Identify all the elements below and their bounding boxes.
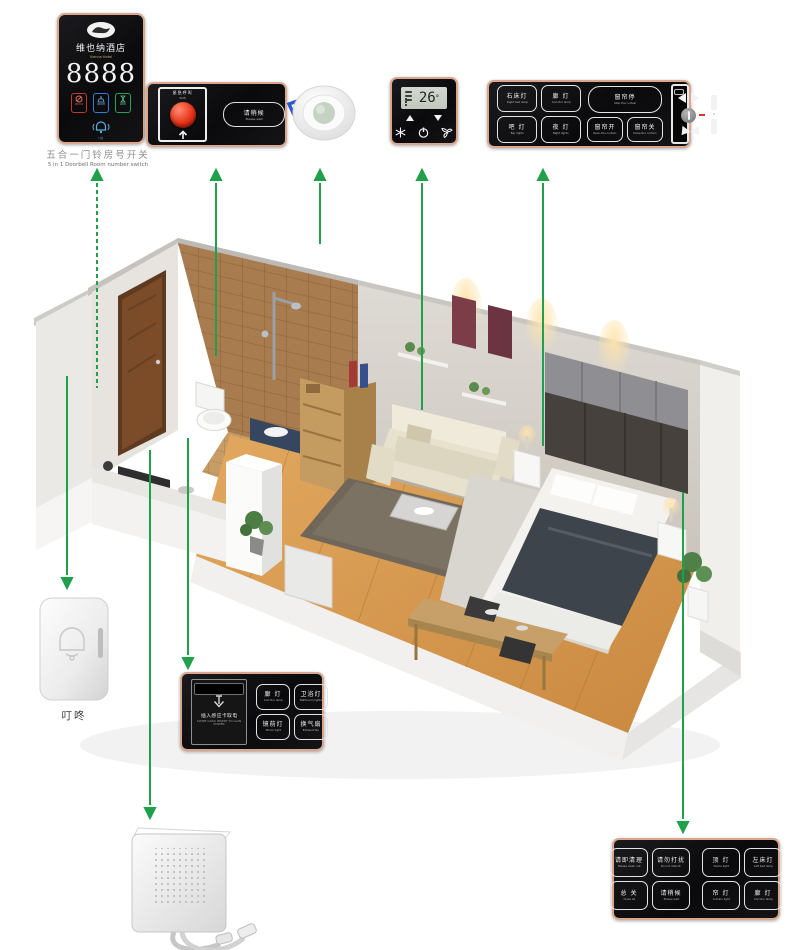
doorbell-button[interactable]: 门铃 <box>91 120 111 140</box>
thermostat-panel: 26 ° <box>390 77 458 145</box>
joystick-red-mark <box>699 114 705 116</box>
please-wait-icon <box>119 95 127 103</box>
temp-up-button[interactable] <box>406 115 414 121</box>
joystick-knob[interactable] <box>681 108 696 123</box>
bedside-scene-panel: 右床灯 Right bed lamp 廊 灯 Corridor lamp 吧 灯… <box>487 80 691 148</box>
wall-control-box <box>118 822 263 950</box>
please-wait-button[interactable]: 请稍候 Please wait <box>223 102 285 127</box>
corridor-lamp-button[interactable]: 廊 灯 Corridor lamp <box>541 85 581 112</box>
clean-room-icon <box>97 95 105 103</box>
card-slot[interactable]: 插入感应卡取电 SWIPE CARD INSERT TO GAIN POWER <box>191 679 247 745</box>
hotel-name: 维也纳酒店 <box>76 41 126 54</box>
exhaust-fan-button[interactable]: 换气扇Exhaust fan <box>294 714 328 740</box>
speaker-slot <box>98 628 103 658</box>
bathroom-light-button[interactable]: 卫浴灯Bathroom lights <box>294 684 328 710</box>
sos-panel: 紧急呼叫 SOS 请稍候 Please wait <box>146 82 287 147</box>
temperature-value: 26 <box>419 91 436 105</box>
curtain-stop-button[interactable]: 窗帘停 Stop the curtain <box>588 86 662 113</box>
right-bed-lamp-button[interactable]: 右床灯 Right bed lamp <box>497 85 537 112</box>
indicator-label: 请即清理 <box>97 103 105 105</box>
do-not-disturb-icon <box>75 95 83 103</box>
joystick-slider-top[interactable] <box>711 95 717 110</box>
pir-motion-sensor <box>286 82 360 144</box>
doorbell-label: 门铃 <box>98 136 103 140</box>
entry-door <box>118 270 166 456</box>
doorbell-icon <box>91 120 111 135</box>
indicator-label: 请勿打扰 <box>75 103 83 105</box>
corridor-lamp-button[interactable]: 廊 灯Corridor lamp <box>256 684 290 710</box>
caption-en: 5 in 1 Doorbell Room number switch <box>18 162 178 168</box>
left-bed-lamp-button[interactable]: 左床灯 Left bed lamp <box>744 848 782 877</box>
clean-room-button[interactable]: 请即清理 Please clean out <box>610 848 648 877</box>
caption-cn: 五合一门铃房号开关 <box>18 147 178 161</box>
device-caption: 五合一门铃房号开关 5 in 1 Doorbell Room number sw… <box>18 147 178 168</box>
mirror-light-button[interactable]: 镜前灯Mirror light <box>256 714 290 740</box>
insert-arrow-icon <box>211 695 227 710</box>
bar-light-button[interactable]: 吧 灯 Bar lights <box>497 116 537 143</box>
room-number: 8888 <box>66 61 136 87</box>
joystick-right-icon[interactable] <box>691 93 699 103</box>
kitchenette <box>92 461 226 562</box>
curtain-joystick-control <box>671 84 689 144</box>
curtain-light-button[interactable]: 帘 灯 Curtain light <box>702 881 740 910</box>
slider-dot <box>713 113 715 115</box>
page: 维也纳酒店 Vienna Hotel 8888 请勿打扰 请即清理 请稍候 <box>0 0 805 950</box>
power-button[interactable] <box>418 127 429 138</box>
wait-label-en: Please wait <box>246 117 263 121</box>
do-not-disturb-button[interactable]: 请勿打扰 Do not disturb <box>652 848 690 877</box>
indicator-label: 请稍候 <box>120 103 126 105</box>
joystick-slider-bottom[interactable] <box>711 119 717 134</box>
corridor-lamp-button[interactable]: 廊 灯 Corridor lamp <box>744 881 782 910</box>
night-light-button[interactable]: 夜 灯 Night lights <box>541 116 581 143</box>
fan-button[interactable] <box>441 127 453 138</box>
temp-down-button[interactable] <box>434 115 442 121</box>
curtain-open-button[interactable]: 窗帘开 Open the curtain <box>587 117 623 142</box>
please-wait-indicator[interactable]: 请稍候 <box>115 93 131 113</box>
card-power-panel: 插入感应卡取电 SWIPE CARD INSERT TO GAIN POWER … <box>180 672 324 751</box>
doorbell-chime <box>34 594 118 706</box>
wait-label: 请稍候 <box>244 108 265 117</box>
sos-label-en: SOS <box>180 96 186 100</box>
room-number-panel: 维也纳酒店 Vienna Hotel 8888 请勿打扰 请即清理 请稍候 <box>57 13 145 144</box>
chime-label: 叮咚 <box>38 708 110 723</box>
clean-room-indicator[interactable]: 请即清理 <box>93 93 109 113</box>
insert-label-en: SWIPE CARD INSERT TO GAIN POWER <box>192 720 246 727</box>
emergency-button[interactable] <box>170 102 196 128</box>
sos-button-frame: 紧急呼叫 SOS <box>158 87 207 142</box>
hotel-logo-icon <box>87 22 115 38</box>
joystick-mode-icon <box>674 89 684 95</box>
card-slot-mouth <box>194 683 244 695</box>
master-bedside-panel: 请即清理 Please clean out 请勿打扰 Do not distur… <box>612 838 780 920</box>
dome-light-button[interactable]: 顶 灯 Dome light <box>702 848 740 877</box>
insert-label: 插入感应卡取电 <box>201 712 238 719</box>
joystick-down-left-icon[interactable] <box>678 126 691 138</box>
press-arrow-icon <box>177 129 189 140</box>
all-off-button[interactable]: 总 关 Close all <box>610 881 648 910</box>
fan-speed-bars <box>405 91 412 101</box>
temperature-unit: ° <box>436 94 440 102</box>
please-wait-button[interactable]: 请稍候 Please wait <box>652 881 690 910</box>
wall-light-glow <box>526 298 558 358</box>
do-not-disturb-indicator[interactable]: 请勿打扰 <box>71 93 87 113</box>
mode-button[interactable] <box>395 127 406 138</box>
outer-left-wall <box>36 292 92 508</box>
thermostat-display: 26 ° <box>401 87 447 109</box>
curtain-close-button[interactable]: 窗帘关 Close the curtain <box>627 117 663 142</box>
speaker-grille <box>152 848 206 904</box>
